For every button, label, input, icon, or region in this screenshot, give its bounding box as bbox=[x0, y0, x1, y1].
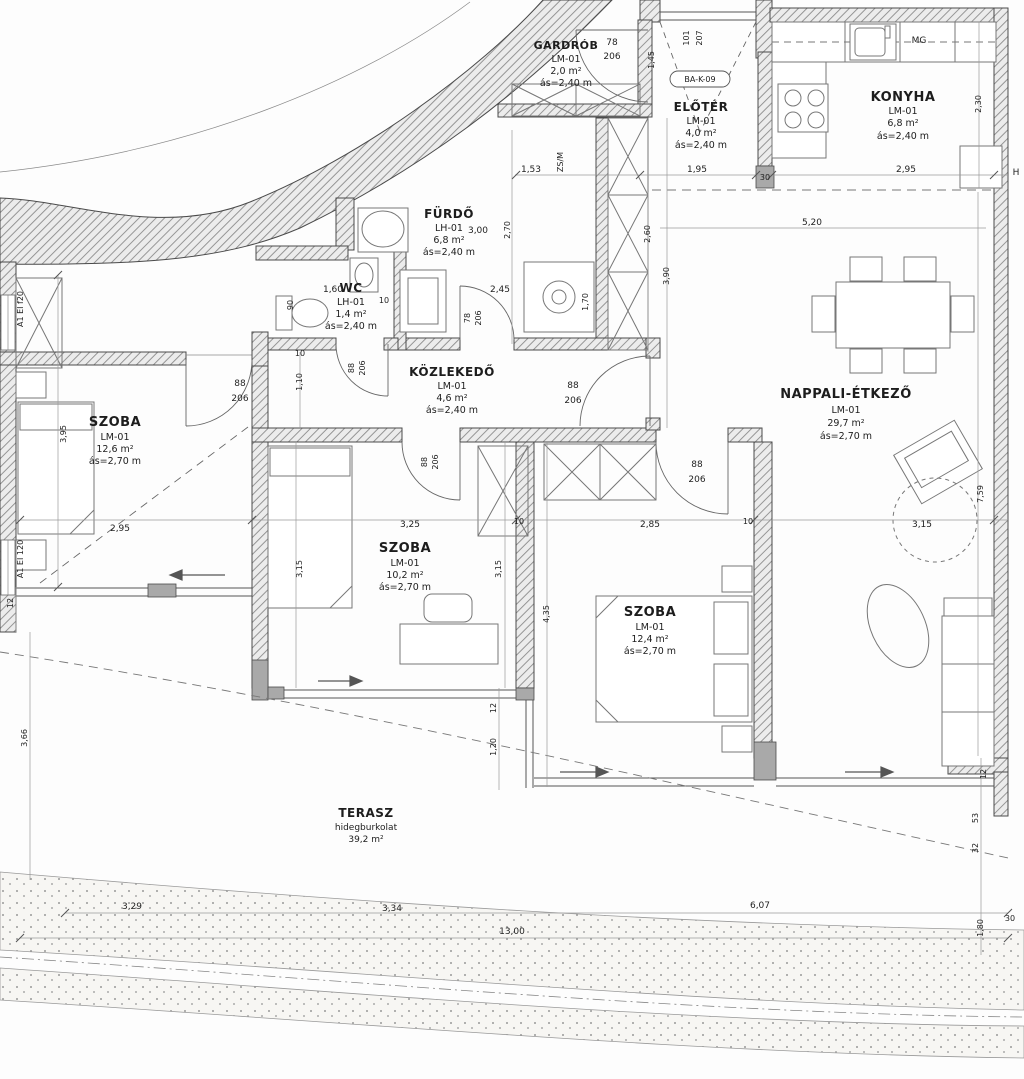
dim: 206 bbox=[564, 396, 581, 406]
room-height: ás=2,40 m bbox=[877, 131, 929, 142]
dim: 3,25 bbox=[400, 520, 420, 530]
dim: 88 bbox=[420, 457, 429, 467]
room-name: SZOBA bbox=[379, 541, 431, 556]
room-code: LM-01 bbox=[635, 622, 664, 633]
dim: 88 bbox=[347, 363, 356, 373]
room-label-kozlekedo: KÖZLEKEDŐ LM-01 4,6 m² ás=2,40 m bbox=[409, 364, 495, 416]
dim: 3,00 bbox=[468, 226, 488, 236]
room-name: KÖZLEKEDŐ bbox=[409, 364, 495, 379]
dim: 6,07 bbox=[750, 901, 770, 911]
room-code: LM-01 bbox=[831, 405, 860, 416]
dim: 2,85 bbox=[640, 520, 660, 530]
dim: 78 bbox=[606, 38, 618, 48]
dim: 3,15 bbox=[494, 560, 503, 578]
entry-door-code: BA-K-09 bbox=[670, 71, 730, 87]
dining-table bbox=[836, 282, 950, 348]
room-code: LM-01 bbox=[686, 116, 715, 127]
room-name: GARDRÓB bbox=[534, 39, 599, 52]
dim: 3,15 bbox=[295, 560, 304, 578]
dim: 53 bbox=[971, 813, 980, 823]
dim: 1,53 bbox=[521, 165, 541, 175]
dim: 88 bbox=[691, 460, 703, 470]
sofa bbox=[942, 616, 994, 766]
coffee-table bbox=[855, 575, 941, 678]
dim: 10 bbox=[743, 517, 753, 526]
room-code: hidegburkolat bbox=[335, 823, 398, 833]
room-area: 2,0 m² bbox=[550, 66, 581, 77]
room-code: LM-01 bbox=[437, 381, 466, 392]
room-code: LM-01 bbox=[390, 558, 419, 569]
dimension-labels: 78 206 1,45 101 207 BA-K-09 1,53 1,95 30… bbox=[6, 30, 1019, 937]
dim: 207 bbox=[695, 30, 704, 45]
chair bbox=[850, 257, 882, 281]
dim: 3,15 bbox=[912, 520, 932, 530]
room-code: LH-01 bbox=[337, 297, 365, 308]
dim: 206 bbox=[431, 454, 440, 469]
dim: 7,59 bbox=[976, 485, 985, 503]
room-height: ás=2,70 m bbox=[624, 646, 676, 657]
dim: 1,95 bbox=[687, 165, 707, 175]
dim: 88 bbox=[234, 379, 246, 389]
chair bbox=[904, 349, 936, 373]
dim: 10 bbox=[514, 517, 524, 526]
room-name: TERASZ bbox=[338, 806, 393, 820]
chair bbox=[904, 257, 936, 281]
room-name: SZOBA bbox=[624, 605, 676, 620]
room-area: 4,0 m² bbox=[685, 128, 716, 139]
bedroom1-furniture bbox=[16, 372, 94, 570]
dim: 1,60 bbox=[323, 285, 343, 295]
dim: 3,90 bbox=[662, 267, 671, 285]
desk-chair bbox=[424, 594, 472, 622]
room-name: ELŐTÉR bbox=[674, 99, 729, 114]
room-height: ás=2,40 m bbox=[325, 321, 377, 332]
nightstand bbox=[722, 726, 752, 752]
dim: 1,80 bbox=[976, 919, 985, 937]
dim: 10 bbox=[295, 349, 305, 358]
room-height: ás=2,70 m bbox=[820, 431, 872, 442]
bed-single bbox=[268, 446, 352, 608]
dim: 206 bbox=[474, 310, 483, 325]
dim: 30 bbox=[760, 173, 770, 182]
window-code-label: A1 EI f20 bbox=[16, 291, 25, 327]
dim: 1,45 bbox=[647, 51, 656, 69]
dim: 90 bbox=[286, 300, 295, 310]
dim: 2,60 bbox=[643, 225, 652, 243]
room-area: 6,8 m² bbox=[887, 118, 918, 129]
room-code: LM-01 bbox=[100, 432, 129, 443]
window-code-label: A1 EI 120 bbox=[16, 540, 25, 578]
room-label-eloter: ELŐTÉR LM-01 4,0 m² ás=2,40 m bbox=[674, 99, 729, 151]
site-lines bbox=[0, 424, 1024, 1058]
room-name: KONYHA bbox=[871, 90, 936, 105]
room-label-konyha: KONYHA LM-01 6,8 m² ás=2,40 m bbox=[871, 90, 936, 142]
dim: 101 bbox=[682, 30, 691, 45]
dim: 88 bbox=[567, 381, 579, 391]
room-name: FÜRDŐ bbox=[424, 206, 474, 221]
dim: 12 bbox=[489, 703, 498, 713]
livingroom-door-arc bbox=[580, 356, 650, 426]
chair bbox=[850, 349, 882, 373]
room2-door-arc bbox=[402, 442, 460, 500]
dim: 2,95 bbox=[896, 165, 916, 175]
room-label-szoba2: SZOBA LM-01 10,2 m² ás=2,70 m bbox=[379, 541, 431, 593]
dim: 78 bbox=[463, 313, 472, 323]
dim: 3,29 bbox=[122, 902, 142, 912]
room-area: 6,8 m² bbox=[433, 235, 464, 246]
door-code-label: BA-K-09 bbox=[684, 75, 715, 84]
dim: 206 bbox=[358, 360, 367, 375]
wc-toilet bbox=[292, 299, 328, 327]
room-name: SZOBA bbox=[89, 415, 141, 430]
dim: 5,20 bbox=[802, 218, 822, 228]
room-code: LH-01 bbox=[435, 223, 463, 234]
room-code: LM-01 bbox=[888, 106, 917, 117]
room-area: 4,6 m² bbox=[436, 393, 467, 404]
dim: 1,20 bbox=[489, 738, 498, 756]
room-area: 39,2 m² bbox=[348, 835, 384, 845]
dim: 2,45 bbox=[490, 285, 510, 295]
dim: 13,00 bbox=[499, 927, 525, 937]
room-area: 10,2 m² bbox=[386, 570, 423, 581]
appliance-mg-label: MG bbox=[912, 36, 927, 46]
dim: 2,70 bbox=[503, 221, 512, 239]
dim: 3,95 bbox=[59, 425, 68, 443]
room-height: ás=2,40 m bbox=[426, 405, 478, 416]
room-area: 12,6 m² bbox=[96, 444, 133, 455]
room-height: ás=2,70 m bbox=[89, 456, 141, 467]
exterior-curved-wall bbox=[0, 0, 612, 264]
room-name: NAPPALI-ÉTKEZŐ bbox=[780, 386, 912, 402]
room-area: 29,7 m² bbox=[827, 418, 864, 429]
dim: 4,35 bbox=[542, 605, 551, 623]
appliance-zsm-label: ZS/M bbox=[556, 152, 565, 172]
room-height: ás=2,40 m bbox=[675, 140, 727, 151]
fridge bbox=[960, 146, 1002, 188]
marker-h-label: H bbox=[1013, 168, 1020, 178]
room1-door-arc bbox=[186, 360, 252, 426]
room-height: ás=2,40 m bbox=[540, 78, 592, 89]
bedroom3-furniture bbox=[596, 566, 752, 752]
room-area: 12,4 m² bbox=[631, 634, 668, 645]
room-label-nappali: NAPPALI-ÉTKEZŐ LM-01 29,7 m² ás=2,70 m bbox=[780, 386, 912, 442]
room-label-szoba1: SZOBA LM-01 12,6 m² ás=2,70 m bbox=[89, 415, 141, 467]
dim: 2,30 bbox=[974, 95, 983, 113]
room-area: 1,4 m² bbox=[335, 309, 366, 320]
floor-plan-page: GARDRÓB LM-01 2,0 m² ás=2,40 m ELŐTÉR LM… bbox=[0, 0, 1024, 1079]
dim: 12 bbox=[979, 769, 988, 779]
dim: 1,70 bbox=[581, 293, 590, 311]
dim: 10 bbox=[379, 296, 389, 305]
floor-plan-drawing: GARDRÓB LM-01 2,0 m² ás=2,40 m ELŐTÉR LM… bbox=[0, 0, 1024, 1079]
nightstand bbox=[722, 566, 752, 592]
dim: 206 bbox=[231, 394, 248, 404]
chair bbox=[951, 296, 974, 332]
living-seating bbox=[855, 420, 994, 766]
dim: 2,95 bbox=[110, 524, 130, 534]
kitchen-counter bbox=[772, 22, 1002, 188]
dim: 30 bbox=[1005, 914, 1015, 923]
room-code: LM-01 bbox=[551, 54, 580, 65]
chair bbox=[812, 296, 835, 332]
dim: 206 bbox=[603, 52, 620, 62]
dim: 3,66 bbox=[20, 729, 29, 747]
interior-walls bbox=[0, 20, 994, 788]
dining-set bbox=[812, 257, 974, 373]
dim: 1,10 bbox=[295, 373, 304, 391]
dim: 3,34 bbox=[382, 904, 402, 914]
room-label-terasz: TERASZ hidegburkolat 39,2 m² bbox=[335, 806, 398, 845]
dim: 206 bbox=[688, 475, 705, 485]
desk bbox=[400, 624, 498, 664]
dim: 32 bbox=[971, 843, 980, 853]
room-height: ás=2,40 m bbox=[423, 247, 475, 258]
room-height: ás=2,70 m bbox=[379, 582, 431, 593]
dim: 12 bbox=[6, 598, 15, 608]
bed-single bbox=[18, 402, 94, 534]
